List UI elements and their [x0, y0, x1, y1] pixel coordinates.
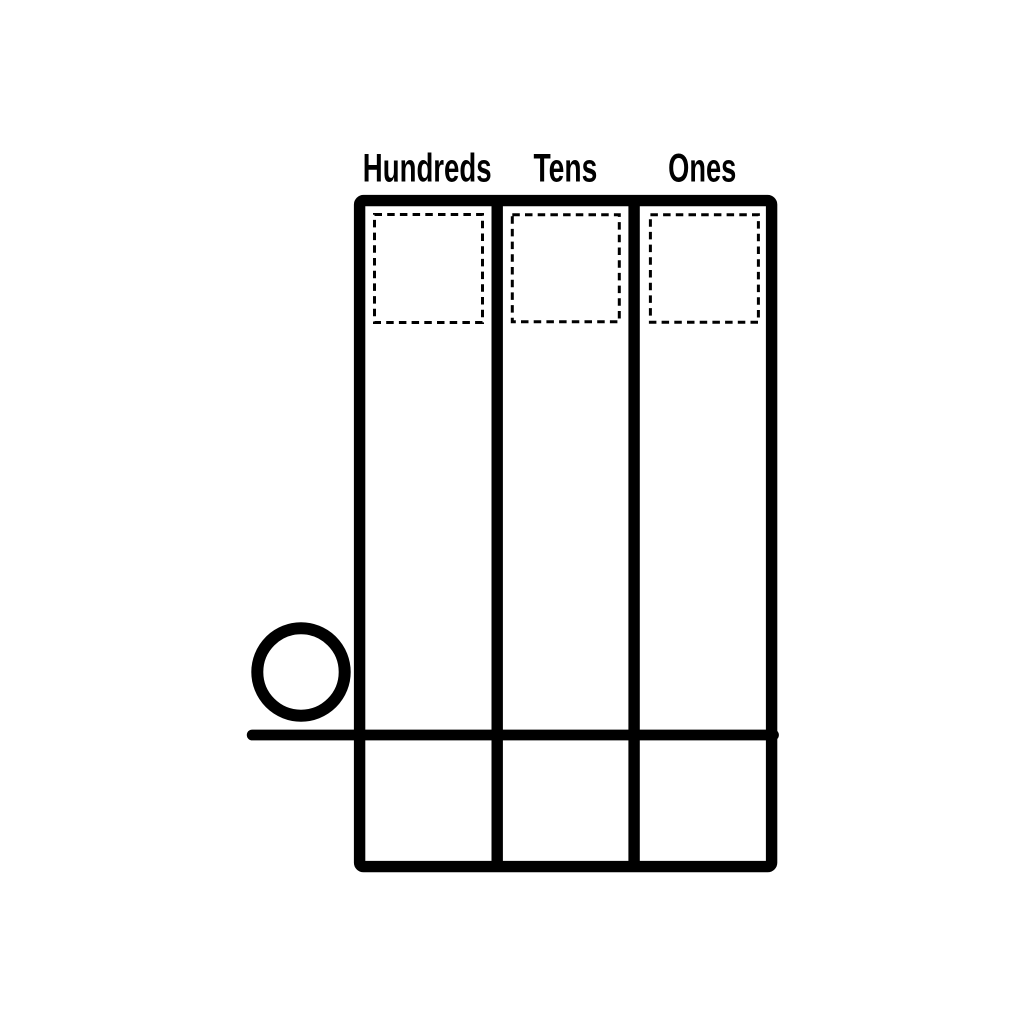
svg-text:Ones: Ones	[668, 147, 736, 191]
svg-text:Hundreds: Hundreds	[363, 147, 492, 191]
svg-text:Tens: Tens	[534, 147, 598, 191]
